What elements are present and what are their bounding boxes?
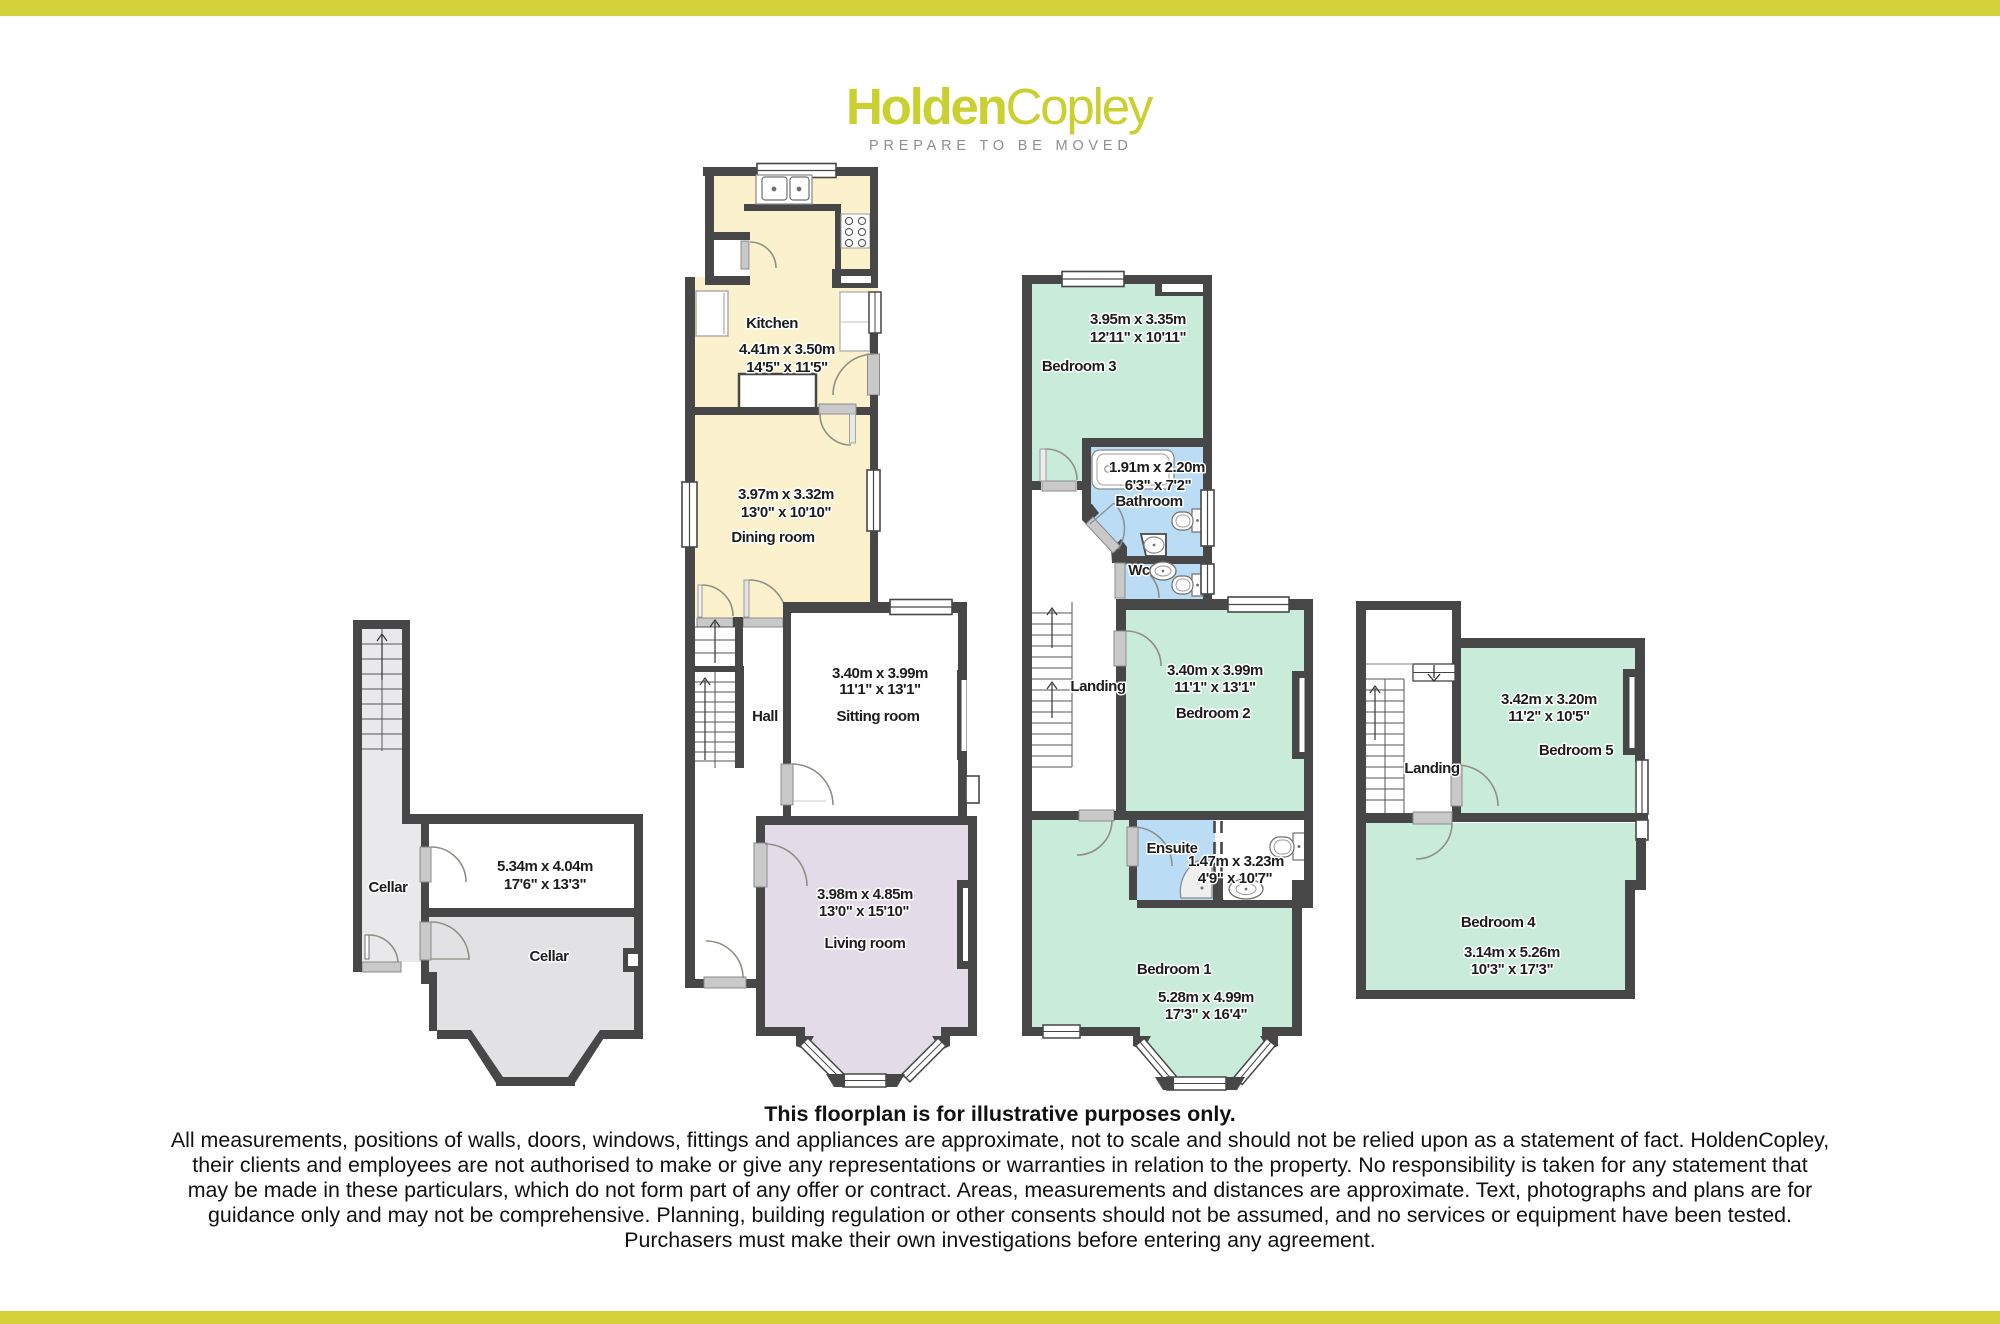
svg-text:their clients and employees ar: their clients and employees are not auth…: [192, 1153, 1807, 1177]
svg-text:1.47m x 3.23m: 1.47m x 3.23m: [1188, 853, 1284, 870]
svg-text:11'2" x 10'5": 11'2" x 10'5": [1508, 708, 1590, 725]
svg-text:Dining room: Dining room: [731, 529, 814, 546]
svg-text:11'1" x 13'1": 11'1" x 13'1": [1174, 679, 1256, 696]
svg-text:PREPARE TO BE MOVED: PREPARE TO BE MOVED: [869, 138, 1133, 154]
svg-text:5.34m x 4.04m: 5.34m x 4.04m: [497, 858, 593, 875]
svg-text:may be made in these particula: may be made in these particulars, which …: [188, 1178, 1813, 1202]
svg-text:3.40m x 3.99m: 3.40m x 3.99m: [832, 665, 928, 682]
svg-text:3.14m x 5.26m: 3.14m x 5.26m: [1464, 944, 1560, 961]
svg-text:13'0" x 10'10": 13'0" x 10'10": [741, 504, 831, 521]
svg-text:13'0" x 15'10": 13'0" x 15'10": [819, 903, 909, 920]
svg-text:6'3" x 7'2": 6'3" x 7'2": [1125, 477, 1192, 494]
svg-text:14'5" x 11'5": 14'5" x 11'5": [746, 359, 828, 376]
svg-text:Bedroom 4: Bedroom 4: [1461, 914, 1536, 931]
svg-text:17'6" x 13'3": 17'6" x 13'3": [504, 876, 587, 893]
svg-text:Bathroom: Bathroom: [1115, 493, 1182, 510]
svg-text:Bedroom 3: Bedroom 3: [1042, 358, 1116, 375]
svg-text:Kitchen: Kitchen: [746, 315, 798, 332]
svg-text:Bedroom 2: Bedroom 2: [1176, 705, 1250, 722]
svg-text:1.91m x 2.20m: 1.91m x 2.20m: [1109, 459, 1205, 476]
svg-text:Landing: Landing: [1070, 678, 1125, 695]
svg-text:3.42m x 3.20m: 3.42m x 3.20m: [1501, 691, 1597, 708]
svg-text:Bedroom 5: Bedroom 5: [1539, 742, 1613, 759]
svg-text:Bedroom 1: Bedroom 1: [1137, 961, 1211, 978]
svg-text:3.98m x 4.85m: 3.98m x 4.85m: [817, 886, 913, 903]
svg-text:Sitting room: Sitting room: [837, 708, 920, 725]
svg-text:HoldenCopley: HoldenCopley: [846, 78, 1154, 135]
svg-text:Living room: Living room: [825, 935, 906, 952]
svg-text:Cellar: Cellar: [530, 948, 570, 965]
svg-text:All measurements, positions of: All measurements, positions of walls, do…: [171, 1128, 1829, 1152]
svg-text:Cellar: Cellar: [369, 879, 409, 896]
svg-text:This floorplan is for illustra: This floorplan is for illustrative purpo…: [764, 1102, 1235, 1126]
svg-text:5.28m x 4.99m: 5.28m x 4.99m: [1158, 989, 1254, 1006]
svg-text:3.97m x 3.32m: 3.97m x 3.32m: [738, 486, 834, 503]
svg-text:guidance only and may not be c: guidance only and may not be comprehensi…: [208, 1203, 1792, 1227]
svg-text:3.40m x 3.99m: 3.40m x 3.99m: [1167, 662, 1263, 679]
svg-text:4'9" x 10'7": 4'9" x 10'7": [1198, 870, 1273, 887]
svg-text:Landing: Landing: [1404, 760, 1459, 777]
svg-text:17'3" x 16'4": 17'3" x 16'4": [1165, 1006, 1248, 1023]
svg-text:Hall: Hall: [752, 708, 778, 725]
svg-text:4.41m x 3.50m: 4.41m x 3.50m: [739, 341, 835, 358]
svg-text:Purchasers must make their own: Purchasers must make their own investiga…: [624, 1228, 1375, 1252]
svg-text:Wc: Wc: [1128, 562, 1150, 579]
svg-text:11'1" x 13'1": 11'1" x 13'1": [839, 681, 921, 698]
svg-text:12'11" x 10'11": 12'11" x 10'11": [1090, 329, 1187, 346]
svg-text:3.95m x 3.35m: 3.95m x 3.35m: [1090, 311, 1186, 328]
svg-text:10'3" x 17'3": 10'3" x 17'3": [1471, 961, 1554, 978]
